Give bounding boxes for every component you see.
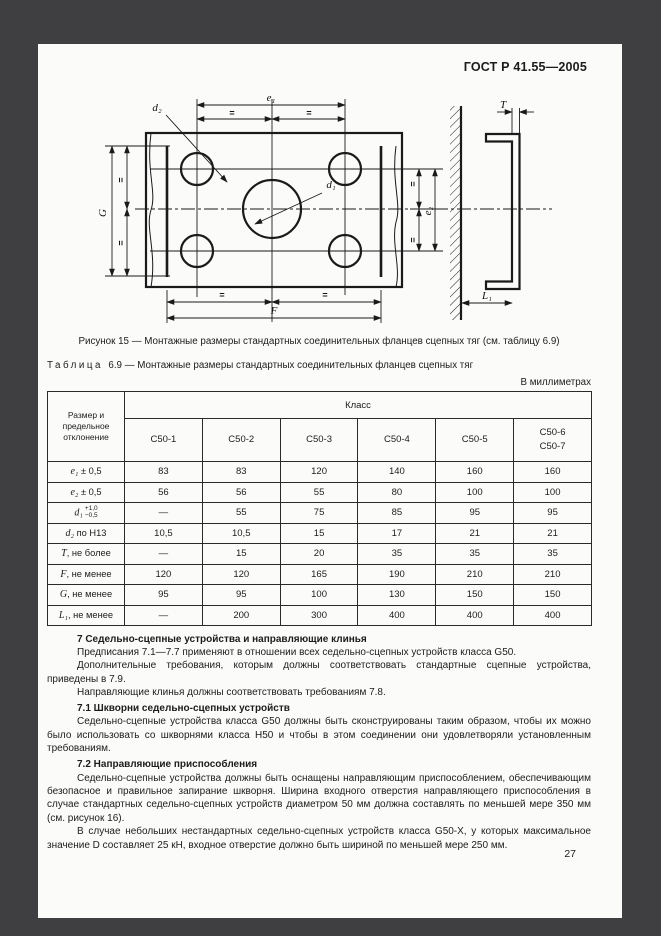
table-cell: 200 [202, 605, 280, 626]
row-label: T, не более [48, 544, 125, 565]
table-cell: 100 [280, 585, 358, 606]
equal-mark: = [408, 181, 418, 186]
paragraph: Седельно-сцепные устройства класса G50 д… [47, 715, 591, 755]
table-cell: 190 [358, 564, 436, 585]
table-cell: — [125, 503, 203, 524]
table-cell: 160 [514, 462, 592, 483]
break-line-right [395, 146, 398, 287]
table-cell: 55 [280, 482, 358, 503]
equal-mark: = [408, 237, 418, 242]
wall-hatching [450, 106, 461, 320]
paragraph: Дополнительные требования, которым должн… [47, 659, 591, 686]
table-cell: 10,5 [125, 523, 203, 544]
column-header-line: C50-5 [436, 433, 513, 447]
table-cell: 160 [436, 462, 514, 483]
equal-mark: = [116, 177, 126, 182]
table-row: T, не более—1520353535 [48, 544, 592, 565]
table-cell: 400 [436, 605, 514, 626]
corner-header: Размер и предельное отклонение [48, 392, 125, 462]
row-label: G, не менее [48, 585, 125, 606]
units-note: В миллиметрах [47, 377, 591, 388]
tolerance-lower: −0,5 [85, 513, 98, 520]
table-cell: 83 [125, 462, 203, 483]
table-row: d₁+1,0−0,5—5575859595 [48, 503, 592, 524]
row-label: e₁ ± 0,5 [48, 462, 125, 483]
table-cell: 21 [514, 523, 592, 544]
table-title-text: 6.9 — Монтажные размеры стандартных соед… [108, 360, 473, 371]
table-cell: 400 [514, 605, 592, 626]
table-cell: 150 [436, 585, 514, 606]
equal-mark: = [322, 290, 327, 300]
label-e2: e₂ [422, 206, 434, 215]
section-heading: 7.2 Направляющие приспособления [47, 758, 591, 771]
doc-number: ГОСТ Р 41.55—2005 [464, 60, 587, 74]
column-header-line: C50-4 [358, 433, 435, 447]
bracket-profile [486, 134, 520, 289]
row-label: F, не менее [48, 564, 125, 585]
class-header: Класс [125, 392, 592, 419]
row-label: L₁, не менее [48, 605, 125, 626]
label-L1: L₁ [481, 290, 492, 302]
row-label: d₁+1,0−0,5 [48, 503, 125, 524]
table-cell: 10,5 [202, 523, 280, 544]
table-cell: 130 [358, 585, 436, 606]
table-cell: 210 [436, 564, 514, 585]
column-header-line: C50-2 [203, 433, 280, 447]
table-cell: 21 [436, 523, 514, 544]
table-row: e₁ ± 0,58383120140160160 [48, 462, 592, 483]
row-label: e₂ ± 0,5 [48, 482, 125, 503]
table-cell: 15 [280, 523, 358, 544]
row-label-suffix: , не менее [68, 610, 113, 620]
label-T: T [500, 99, 507, 111]
row-label-suffix: , не более [67, 548, 111, 558]
table-cell: 56 [125, 482, 203, 503]
row-label-suffix: , не менее [67, 589, 112, 599]
table-cell: 17 [358, 523, 436, 544]
table-cell: 20 [280, 544, 358, 565]
table-row: L₁, не менее—200300400400400 [48, 605, 592, 626]
column-header: C50-3 [280, 419, 358, 462]
figure-caption: Рисунок 15 — Монтажные размеры стандартн… [47, 336, 591, 347]
section-7-text: 7 Седельно-сцепные устройства и направля… [47, 630, 591, 852]
table-cell: 15 [202, 544, 280, 565]
table-cell: 400 [358, 605, 436, 626]
spec-table: Размер и предельное отклонениеКлассC50-1… [47, 391, 592, 626]
row-label: d₂ по H13 [48, 523, 125, 544]
label-G: G [97, 209, 109, 217]
paragraph: В случае небольших нестандартных седельн… [47, 825, 591, 852]
label-d1: d₁ [326, 179, 336, 191]
column-header-line: C50-1 [125, 433, 202, 447]
table-subheader-row: C50-1C50-2C50-3C50-4C50-5C50-6C50-7 [48, 419, 592, 462]
paragraph: Предписания 7.1—7.7 применяют в отношени… [47, 646, 591, 659]
column-header-line: C50-6 [514, 426, 591, 440]
paragraph: Направляющие клинья должны соответствова… [47, 686, 591, 699]
equal-mark: = [116, 240, 126, 245]
table-cell: 35 [436, 544, 514, 565]
table-cell: 165 [280, 564, 358, 585]
column-header: C50-6C50-7 [514, 419, 592, 462]
dimension-symbol: d₂ [66, 528, 74, 539]
table-cell: 80 [358, 482, 436, 503]
dimension-symbol: L₁ [59, 610, 68, 621]
table-cell: 95 [514, 503, 592, 524]
table-cell: — [125, 605, 203, 626]
dimension-symbol: d₁ [74, 507, 82, 518]
page-number: 27 [540, 848, 576, 860]
table-cell: 120 [280, 462, 358, 483]
table-header-row: Размер и предельное отклонениеКласс [48, 392, 592, 419]
table-cell: 55 [202, 503, 280, 524]
row-label-suffix: ± 0,5 [78, 466, 101, 476]
row-label-suffix: , не менее [67, 569, 112, 579]
dimension-symbol: G [60, 589, 67, 600]
table-cell: 83 [202, 462, 280, 483]
table-cell: 95 [202, 585, 280, 606]
table-cell: 85 [358, 503, 436, 524]
table-title-word: Таблица [47, 360, 103, 371]
column-header-line: C50-3 [281, 433, 358, 447]
table-cell: 120 [125, 564, 203, 585]
label-e1: e₁ [267, 92, 276, 104]
label-d2: d₂ [152, 102, 162, 114]
table-cell: 120 [202, 564, 280, 585]
table-row: d₂ по H1310,510,515172121 [48, 523, 592, 544]
equal-mark: = [229, 108, 234, 118]
table-cell: 35 [514, 544, 592, 565]
column-header: C50-5 [436, 419, 514, 462]
row-label-suffix: по H13 [74, 528, 106, 538]
table-cell: — [125, 544, 203, 565]
table-cell: 100 [514, 482, 592, 503]
column-header: C50-2 [202, 419, 280, 462]
section-heading: 7.1 Шкворни седельно-сцепных устройств [47, 702, 591, 715]
table-cell: 35 [358, 544, 436, 565]
row-label-suffix: ± 0,5 [78, 487, 101, 497]
dimensions-front: e₁ = = G = = = = e₂ d₂ d₁ [97, 92, 443, 323]
side-view: T L₁ [450, 99, 534, 320]
table-cell: 56 [202, 482, 280, 503]
break-line-left [149, 133, 153, 287]
equal-mark: = [306, 108, 311, 118]
paragraph: Седельно-сцепные устройства должны быть … [47, 772, 591, 826]
label-F: F [270, 305, 278, 317]
table-cell: 300 [280, 605, 358, 626]
table-cell: 140 [358, 462, 436, 483]
table-title: Таблица 6.9 — Монтажные размеры стандарт… [47, 360, 591, 371]
table-cell: 95 [436, 503, 514, 524]
column-header: C50-4 [358, 419, 436, 462]
plate-outline [146, 133, 402, 287]
section-heading: 7 Седельно-сцепные устройства и направля… [47, 633, 591, 646]
figure-15-drawing: e₁ = = G = = = = e₂ d₂ d₁ [90, 88, 570, 333]
viewer-background: ГОСТ Р 41.55—2005 [0, 0, 661, 936]
table-cell: 150 [514, 585, 592, 606]
column-header: C50-1 [125, 419, 203, 462]
table-cell: 210 [514, 564, 592, 585]
tolerance-stack: +1,0−0,5 [85, 506, 98, 520]
table-row: e₂ ± 0,556565580100100 [48, 482, 592, 503]
table-cell: 95 [125, 585, 203, 606]
equal-mark: = [219, 290, 224, 300]
column-header-line: C50-7 [514, 440, 591, 454]
table-cell: 75 [280, 503, 358, 524]
table-row: G, не менее9595100130150150 [48, 585, 592, 606]
table-cell: 100 [436, 482, 514, 503]
table-row: F, не менее120120165190210210 [48, 564, 592, 585]
